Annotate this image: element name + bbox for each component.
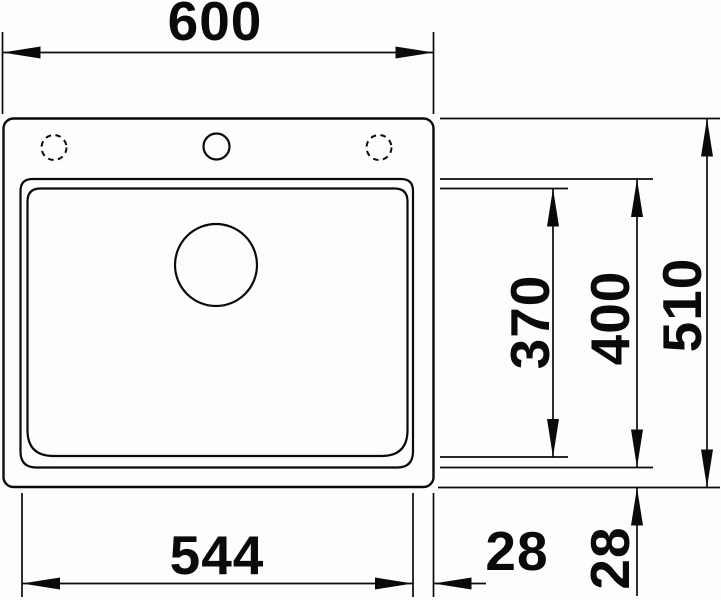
sink-outline (4, 119, 434, 488)
arrowhead-down (547, 419, 559, 457)
arrowhead-right (396, 47, 434, 59)
dim-label-bowl-width: 544 (170, 524, 265, 586)
sink-technical-drawing: 600 544 28 370 400 510 28 (0, 0, 721, 600)
arrowhead-left (434, 578, 472, 590)
arrowhead-up (631, 179, 643, 217)
dim-bottom-offset: 28 (579, 488, 643, 597)
tap-hole-left-option (42, 135, 67, 160)
arrowhead-up (547, 189, 559, 227)
drawing-canvas: 600 544 28 370 400 510 28 (0, 0, 721, 600)
dim-side-offset: 28 (434, 520, 549, 590)
dim-overall-width: 600 (3, 0, 434, 59)
bowl-outer-edge (21, 179, 414, 468)
dim-bowl-outer-depth: 400 (579, 179, 643, 468)
dim-overall-depth: 510 (651, 119, 713, 488)
dim-label-bowl-outer-depth: 400 (579, 271, 641, 366)
arrowhead-up (631, 488, 643, 526)
tap-hole-center (204, 134, 230, 160)
arrowhead-left (22, 578, 60, 590)
dim-label-bowl-inner-depth: 370 (499, 275, 561, 370)
dim-bowl-width: 544 (22, 524, 413, 590)
dim-label-side-offset: 28 (485, 520, 548, 582)
tap-hole-right-option (367, 135, 392, 160)
arrowhead-up (701, 119, 713, 157)
drain-hole (175, 224, 257, 306)
sink-body (4, 119, 434, 488)
dim-label-bottom-offset: 28 (579, 526, 641, 589)
arrowhead-left (3, 47, 41, 59)
bowl-inner-edge (28, 189, 408, 457)
dim-label-overall-depth: 510 (651, 258, 713, 353)
arrowhead-down (631, 430, 643, 468)
dim-label-overall-width: 600 (168, 0, 263, 52)
arrowhead-down (701, 450, 713, 488)
arrowhead-right (375, 578, 413, 590)
dim-bowl-inner-depth: 370 (499, 189, 561, 458)
